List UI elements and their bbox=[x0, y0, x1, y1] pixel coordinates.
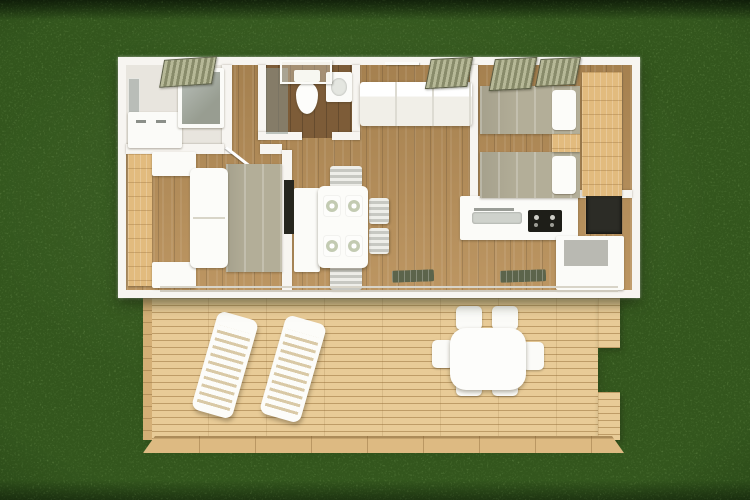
faucet-icon bbox=[136, 120, 146, 123]
window-shutter bbox=[425, 57, 473, 89]
place-setting bbox=[324, 236, 340, 256]
basin-icon bbox=[331, 78, 347, 96]
wall-wc-left bbox=[258, 65, 266, 140]
tv-sideboard bbox=[294, 188, 320, 272]
wardrobe-left bbox=[128, 154, 152, 286]
fridge bbox=[586, 194, 622, 234]
burner-icon bbox=[550, 223, 554, 227]
kitchen-cabinet bbox=[556, 236, 624, 290]
double-bed-duvet bbox=[226, 164, 282, 272]
mirror bbox=[128, 78, 140, 114]
pillow bbox=[552, 90, 576, 130]
dining-chair bbox=[330, 166, 362, 188]
kitchen-counter bbox=[460, 196, 578, 240]
nightstand bbox=[152, 262, 196, 288]
wardrobe-right bbox=[582, 72, 622, 196]
faucet-icon bbox=[474, 208, 514, 211]
dining-chair bbox=[369, 228, 389, 254]
place-setting bbox=[324, 196, 340, 216]
window-frame bbox=[280, 60, 332, 84]
sofa bbox=[360, 82, 472, 126]
burner-icon bbox=[534, 215, 539, 220]
single-bed bbox=[480, 152, 580, 198]
vanity-unit bbox=[128, 112, 182, 148]
wall-wc-bottom bbox=[332, 132, 360, 140]
patio-table bbox=[450, 328, 526, 390]
pillow-divider bbox=[193, 217, 225, 219]
cabinet-shelf bbox=[564, 240, 608, 266]
window-frame bbox=[385, 62, 419, 65]
deck-step-bottom bbox=[598, 392, 620, 440]
pillow bbox=[552, 156, 576, 194]
window-shutter bbox=[159, 56, 217, 88]
burner-icon bbox=[534, 223, 538, 227]
deck-step-top bbox=[598, 298, 620, 348]
door-mat bbox=[392, 269, 434, 282]
single-bed bbox=[480, 86, 580, 134]
place-setting bbox=[346, 196, 362, 216]
wall-bedroom-top bbox=[260, 144, 282, 154]
burner-icon bbox=[550, 215, 555, 220]
sliding-door-track bbox=[160, 286, 618, 288]
wall-wc-right bbox=[352, 65, 360, 140]
sliding-door-track bbox=[160, 290, 618, 292]
window-shutter bbox=[535, 57, 581, 87]
dining-chair bbox=[369, 198, 389, 224]
tv-screen bbox=[284, 180, 294, 234]
patio-chair bbox=[456, 306, 482, 330]
door-mat bbox=[500, 269, 546, 283]
faucet-icon bbox=[156, 120, 166, 123]
bedside-table bbox=[552, 134, 580, 152]
double-bed-pillows bbox=[190, 168, 228, 268]
deck-edge-left bbox=[143, 298, 152, 440]
patio-chair bbox=[492, 306, 518, 330]
dining-table bbox=[318, 186, 368, 268]
cooktop bbox=[528, 210, 562, 232]
window-shutter bbox=[489, 57, 538, 91]
deck-skirt bbox=[143, 436, 624, 453]
kitchen-sink bbox=[472, 212, 522, 224]
place-setting bbox=[346, 236, 362, 256]
aerial-floor-plan-scene bbox=[0, 0, 750, 500]
